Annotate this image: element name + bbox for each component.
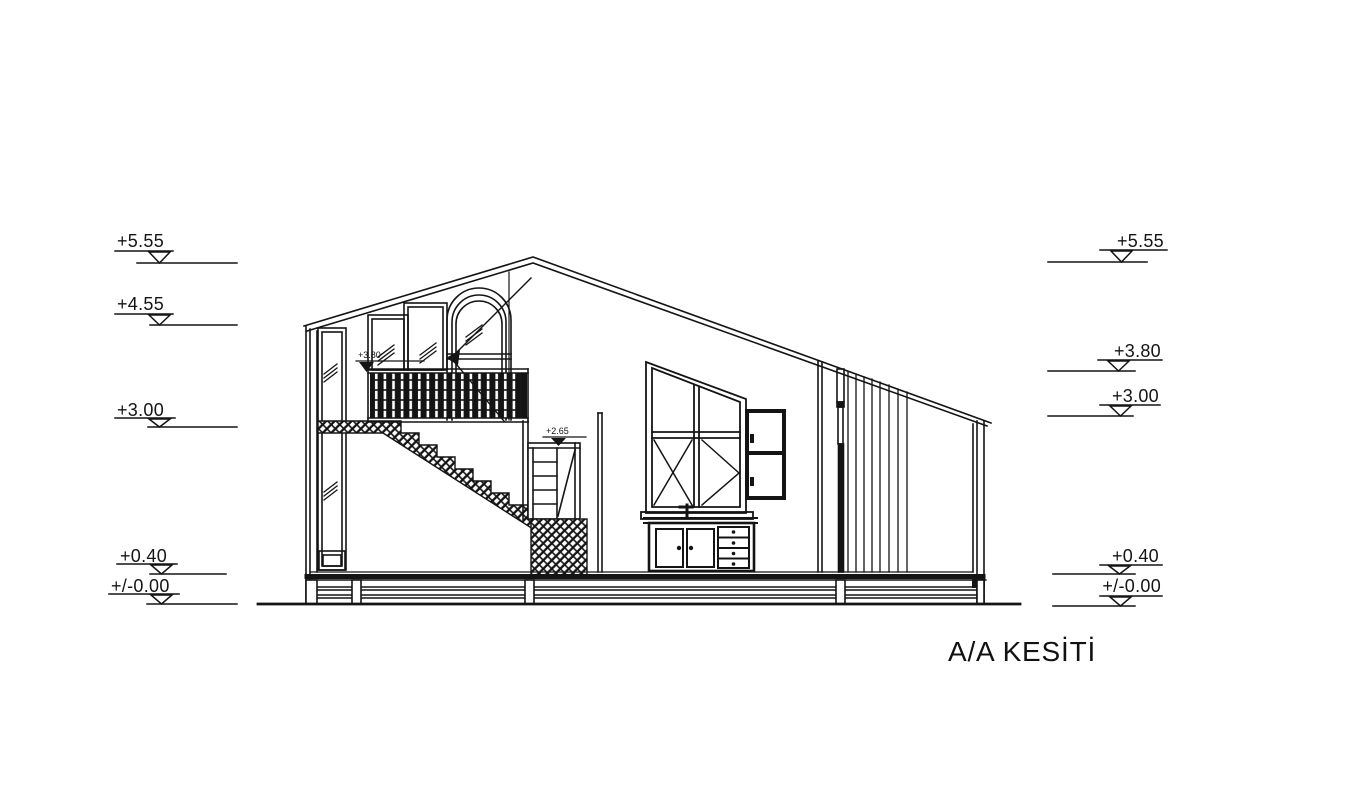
level-label-left-455: +4.55 — [117, 295, 164, 313]
foundation-pier — [525, 580, 534, 604]
knob — [732, 552, 736, 556]
stove-pipe-pole — [837, 369, 844, 572]
level-label-right-380: +3.80 — [1114, 342, 1161, 360]
foundation — [258, 580, 1020, 604]
interior-wall-line — [818, 361, 822, 572]
level-label-left-300: +3.00 — [117, 401, 164, 419]
level-label-right-000: +/-0.00 — [1102, 577, 1161, 595]
stair — [318, 421, 533, 529]
handle — [750, 434, 754, 443]
handle — [750, 477, 754, 486]
thin-post — [598, 413, 602, 572]
foundation-pier — [352, 580, 361, 604]
knob — [689, 546, 693, 550]
floor-slab — [307, 572, 986, 580]
knob — [732, 541, 736, 545]
foundation-pier — [977, 580, 984, 604]
understair-closet — [528, 443, 580, 519]
knob — [732, 530, 736, 534]
level-label-right-555: +5.55 — [1117, 232, 1164, 250]
drawing-title: A/A KESİTİ — [948, 636, 1096, 668]
stair-flight — [318, 421, 533, 529]
foundation-pier — [836, 580, 845, 604]
level-label-closet-265: +2.65 — [546, 427, 569, 436]
level-label-railing-380: +3.80 — [358, 351, 381, 360]
section-drawing-sheet: +5.55 +4.55 +3.00 +0.40 +/-0.00 +5.55 +3… — [0, 0, 1360, 792]
level-marker-symbols — [109, 250, 1167, 606]
level-label-left-040: +0.40 — [120, 547, 167, 565]
base-cabinet — [644, 518, 757, 571]
glass-symbol — [378, 343, 436, 365]
knob — [732, 562, 736, 566]
mezzanine-railing — [368, 369, 528, 422]
level-label-left-000: +/-0.00 — [111, 577, 170, 595]
wall-cupboard — [747, 411, 784, 498]
sloped-window — [641, 362, 753, 519]
knob — [677, 546, 681, 550]
level-label-right-300: +3.00 — [1112, 387, 1159, 405]
slat-screen — [848, 371, 907, 572]
direction-arrowhead — [446, 350, 460, 365]
level-label-left-555: +5.55 — [117, 232, 164, 250]
tall-window — [318, 328, 346, 570]
left-wall — [306, 326, 317, 604]
foundation-pier — [306, 580, 317, 604]
stair-base-block — [531, 519, 587, 577]
level-label-right-040: +0.40 — [1112, 547, 1159, 565]
